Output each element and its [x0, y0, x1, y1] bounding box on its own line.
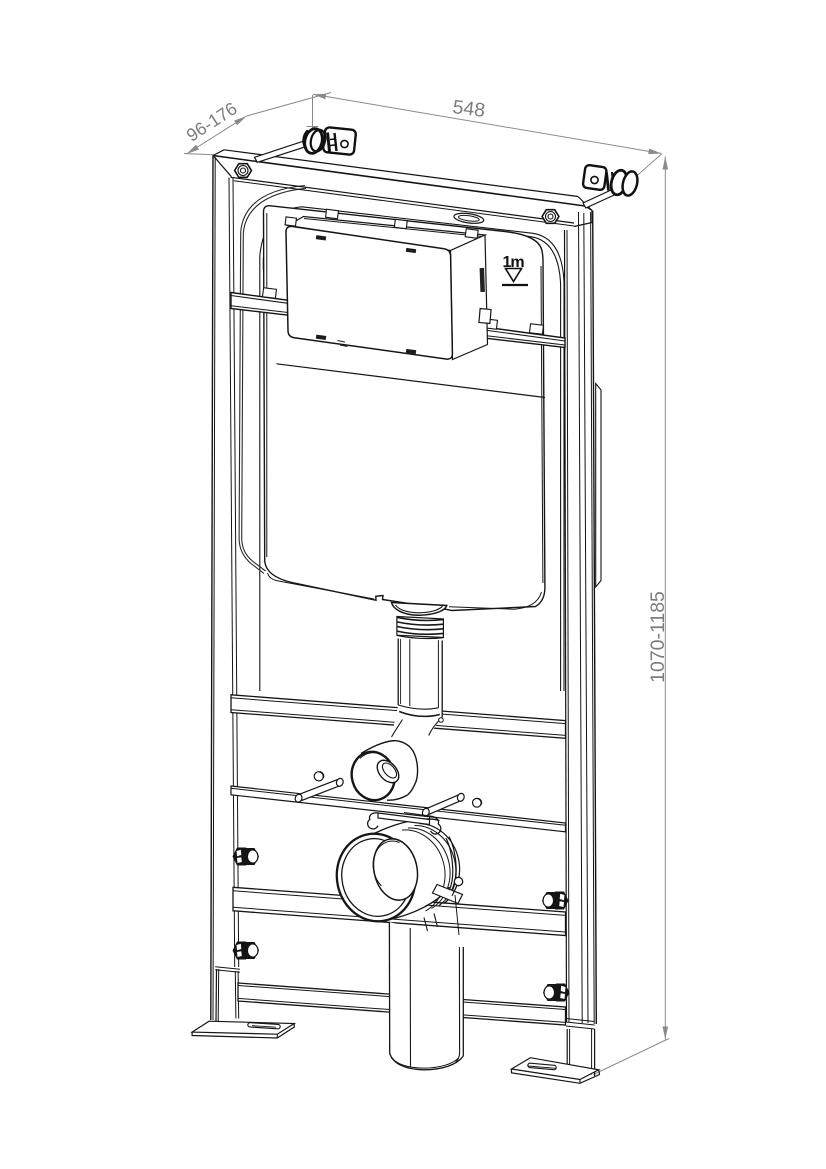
svg-text:1070-1185: 1070-1185 [647, 591, 669, 683]
svg-text:548: 548 [451, 96, 486, 122]
